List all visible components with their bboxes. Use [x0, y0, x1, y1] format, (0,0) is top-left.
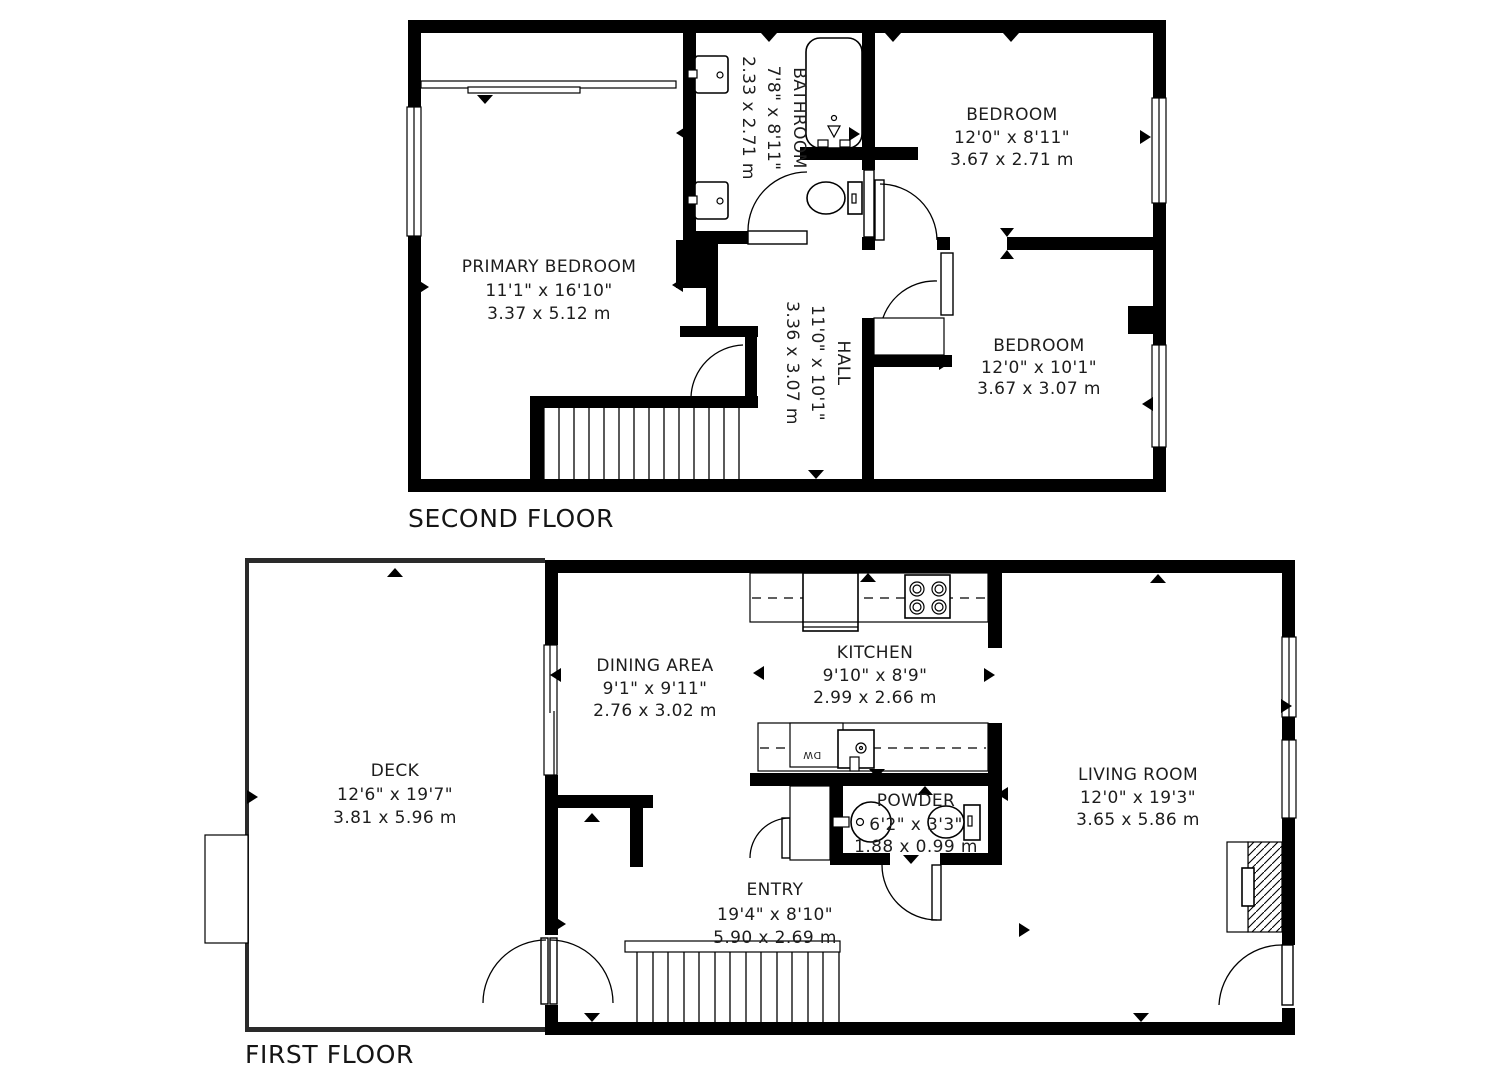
room-dims-m: 3.65 x 5.86 m — [1076, 810, 1200, 830]
room-dims-m: 2.76 x 3.02 m — [593, 701, 717, 721]
stove-icon — [905, 575, 950, 618]
room-label-kitchen: KITCHEN 9'10" x 8'9" 2.99 x 2.66 m — [813, 643, 937, 708]
entry-closet — [790, 786, 830, 860]
room-label-deck: DECK 12'6" x 19'7" 3.81 x 5.96 m — [333, 761, 457, 828]
room-dims-m: 5.90 x 2.69 m — [713, 928, 837, 948]
room-label-living-room: LIVING ROOM 12'0" x 19'3" 3.65 x 5.86 m — [1076, 765, 1200, 830]
room-name: PRIMARY BEDROOM — [462, 257, 637, 277]
floorplan-page: PRIMARY BEDROOM 11'1" x 16'10" 3.37 x 5.… — [0, 0, 1500, 1080]
entry-closet-door — [750, 818, 790, 858]
room-dims-m: 1.88 x 0.99 m — [854, 837, 978, 857]
room-name: POWDER — [877, 791, 956, 811]
front-door — [1219, 945, 1293, 1005]
room-dims-ft: 9'1" x 9'11" — [603, 679, 708, 699]
room-dims-ft: 19'4" x 8'10" — [717, 905, 833, 925]
room-label-dining-area: DINING AREA 9'1" x 9'11" 2.76 x 3.02 m — [593, 656, 717, 721]
bedroom-closet — [874, 318, 944, 355]
room-label-bedroom-2: BEDROOM 12'0" x 10'1" 3.67 x 3.07 m — [977, 336, 1101, 399]
room-dims-ft: 6'2" x 3'3" — [869, 815, 963, 835]
room-name: ENTRY — [747, 880, 804, 900]
room-dims-ft: 12'0" x 8'11" — [954, 128, 1070, 148]
room-name: HALL — [833, 341, 853, 386]
first-floor-labels: DECK 12'6" x 19'7" 3.81 x 5.96 m DINING … — [333, 643, 1200, 948]
room-dims-m: 2.99 x 2.66 m — [813, 688, 937, 708]
first-floor-label: FIRST FLOOR — [245, 1040, 414, 1069]
room-dims-m: 3.36 x 3.07 m — [782, 301, 802, 425]
room-name: DECK — [371, 761, 420, 781]
closet-sliding-doors — [421, 81, 676, 93]
room-label-bathroom: BATHROOM 7'8" x 8'11" 2.33 x 2.71 m — [738, 56, 809, 180]
kitchen-sink-icon — [838, 730, 874, 771]
room-dims-ft: 7'8" x 8'11" — [763, 66, 783, 171]
window — [407, 107, 421, 236]
deck-steps — [205, 835, 248, 943]
sliding-glass-door — [544, 645, 557, 775]
room-name: BATHROOM — [789, 67, 809, 169]
room-dims-m: 3.67 x 3.07 m — [977, 379, 1101, 399]
door-bedroom-1 — [864, 170, 937, 240]
room-dims-ft: 9'10" x 8'9" — [823, 666, 928, 686]
room-dims-m: 3.37 x 5.12 m — [487, 304, 611, 324]
room-label-bedroom-1: BEDROOM 12'0" x 8'11" 3.67 x 2.71 m — [950, 105, 1074, 170]
deck-double-door — [483, 938, 613, 1004]
room-dims-m: 2.33 x 2.71 m — [738, 56, 758, 180]
room-dims-ft: 12'0" x 10'1" — [981, 358, 1097, 378]
first-floor-plan: DW — [205, 558, 1296, 1069]
room-label-primary-bedroom: PRIMARY BEDROOM 11'1" x 16'10" 3.37 x 5.… — [462, 257, 637, 324]
room-dims-ft: 12'6" x 19'7" — [337, 785, 453, 805]
window — [1152, 345, 1166, 447]
dishwasher-icon: DW — [790, 723, 843, 767]
second-floor-stairs — [544, 408, 739, 479]
dishwasher-label: DW — [803, 749, 821, 760]
room-dims-ft: 11'1" x 16'10" — [485, 281, 612, 301]
room-label-entry: ENTRY 19'4" x 8'10" 5.90 x 2.69 m — [713, 880, 837, 948]
door-primary-bedroom — [691, 345, 743, 397]
window — [1152, 98, 1166, 203]
powder-door — [882, 865, 941, 920]
room-name: BEDROOM — [993, 336, 1085, 356]
door-bathroom — [748, 172, 807, 244]
room-label-hall: HALL 11'0" x 10'1" 3.36 x 3.07 m — [782, 301, 853, 425]
room-name: KITCHEN — [837, 643, 913, 663]
floorplan-drawing: PRIMARY BEDROOM 11'1" x 16'10" 3.37 x 5.… — [0, 0, 1500, 1080]
window — [1282, 740, 1296, 818]
room-dims-ft: 11'0" x 10'1" — [807, 305, 827, 421]
fireplace-icon — [1227, 842, 1282, 932]
toilet-icon — [807, 182, 862, 214]
room-dims-ft: 12'0" x 19'3" — [1080, 788, 1196, 808]
room-name: LIVING ROOM — [1078, 765, 1198, 785]
room-name: DINING AREA — [596, 656, 713, 676]
fridge-icon — [803, 573, 858, 631]
second-floor-label: SECOND FLOOR — [408, 504, 614, 533]
room-dims-m: 3.67 x 2.71 m — [950, 150, 1074, 170]
room-name: BEDROOM — [966, 105, 1058, 125]
second-floor-plan: PRIMARY BEDROOM 11'1" x 16'10" 3.37 x 5.… — [407, 20, 1166, 533]
room-dims-m: 3.81 x 5.96 m — [333, 808, 457, 828]
room-label-powder: POWDER 6'2" x 3'3" 1.88 x 0.99 m — [854, 791, 978, 857]
first-floor-stairs — [625, 941, 840, 1022]
